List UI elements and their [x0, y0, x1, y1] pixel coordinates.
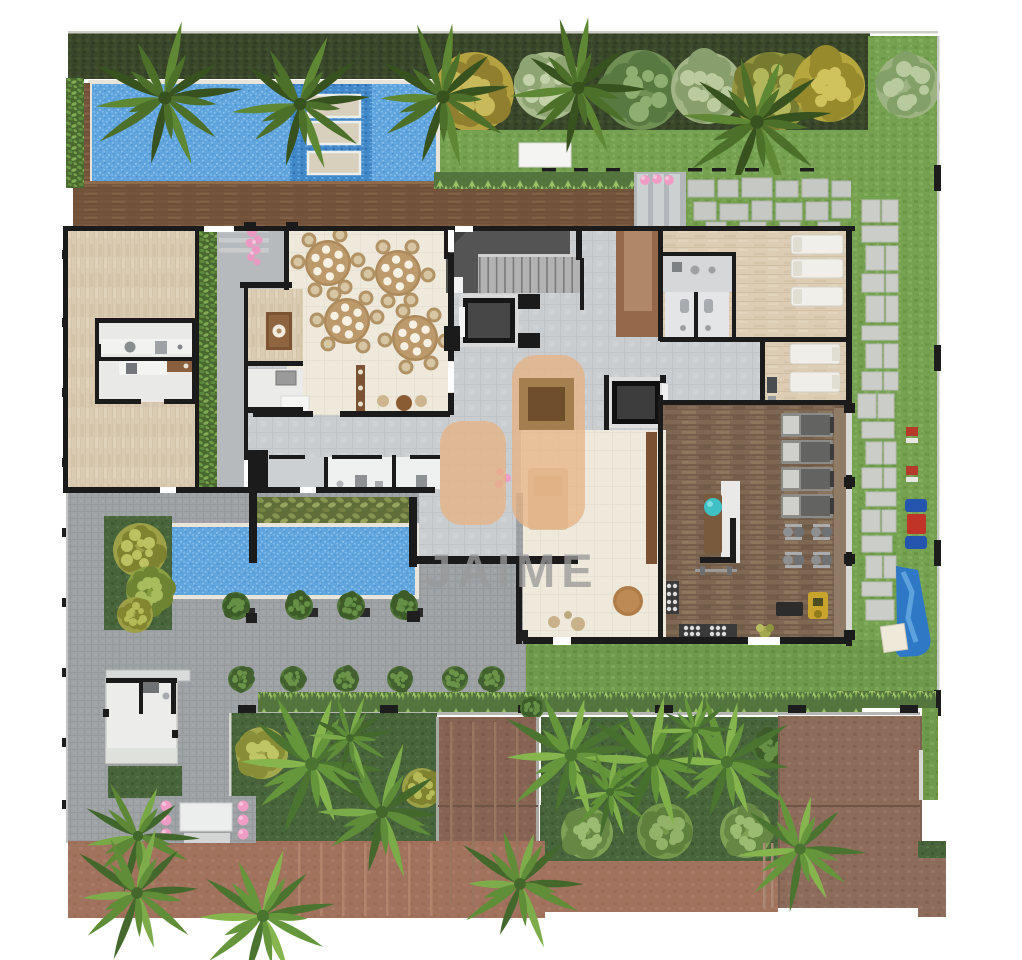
svg-text:JAIME: JAIME [425, 544, 599, 597]
